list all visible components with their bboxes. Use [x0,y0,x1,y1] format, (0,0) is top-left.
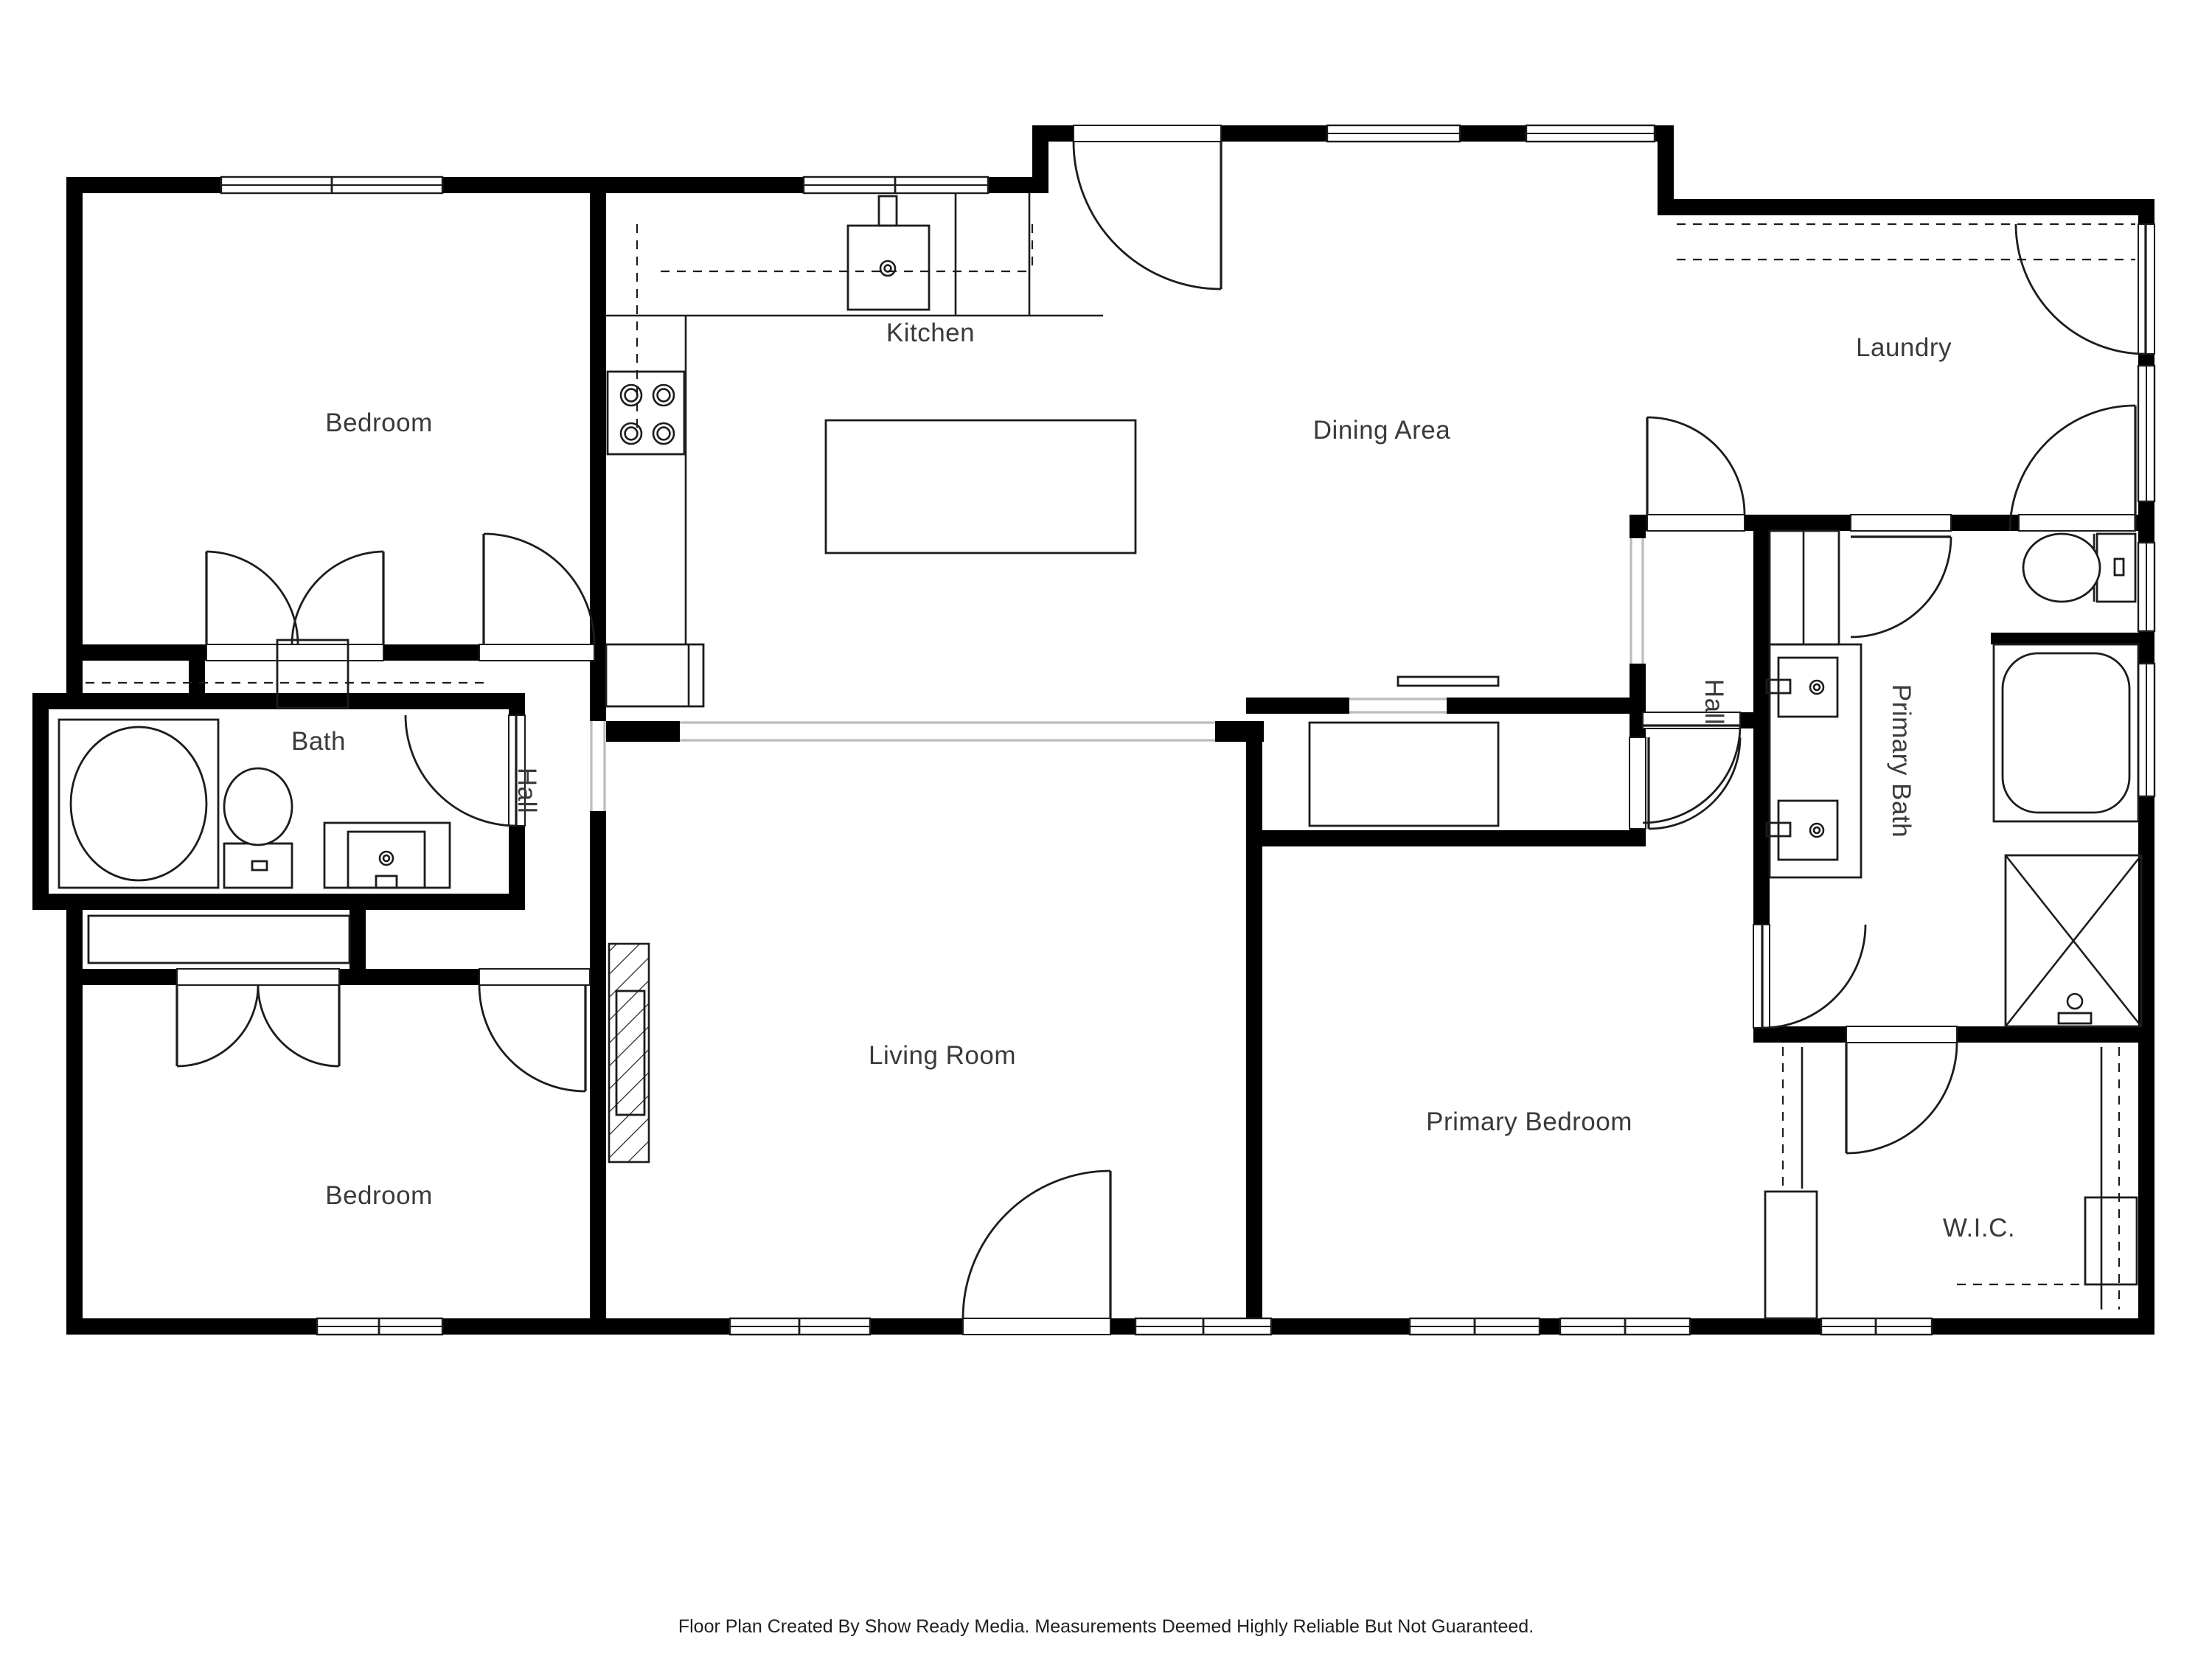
fixture-circle [380,852,393,865]
door-swing-arc [1846,1043,1957,1153]
fixture-circle [1810,681,1823,694]
fixture-circle [625,428,638,440]
door-opening [1630,737,1646,829]
door-opening [479,644,594,661]
door-swing-arc [258,985,339,1066]
niche-shelf [1398,677,1498,686]
wall [1246,830,1646,846]
kitchen-sink-icon [848,226,929,310]
door-swing-arc [2010,406,2135,531]
fixture-circle [1810,824,1823,837]
wall [32,693,49,910]
door-swing-arc [1074,142,1221,289]
wall [32,894,525,910]
toilet-button-icon [2115,559,2124,575]
door-swing-arc [206,552,298,644]
fixture-circle [2067,994,2082,1009]
door-swing-arc [2016,224,2146,354]
wall [1991,633,2154,644]
bath-faucet-icon [376,876,397,888]
fixture-circle [1814,684,1820,690]
door-opening [2019,515,2135,531]
footer-disclaimer: Floor Plan Created By Show Ready Media. … [0,1616,2212,1638]
floor-plan-drawing [0,0,2212,1659]
closet-shelving [88,916,349,963]
fixture-circle [625,389,638,402]
wall [66,894,83,1335]
door-opening [206,644,383,661]
floor-plan-page: BedroomKitchenDining AreaLaundryBathHall… [0,0,2212,1659]
door-opening [479,969,590,985]
door-swing-arc [177,985,258,1066]
door-swing-arc [484,534,594,644]
bathtub-icon [2003,653,2129,813]
toilet-tank-icon [2097,534,2135,602]
wall [606,721,680,742]
bath-sink-icon [1778,658,1837,717]
door-swing-arc [1643,726,1740,823]
fixture-circle [880,261,895,276]
bathtub-icon [71,727,206,880]
bath-sink-icon [1778,801,1837,860]
closet-shelving [1310,723,1498,826]
door-opening [1647,515,1745,531]
toilet-tank-icon [224,844,292,888]
wall [66,177,83,709]
door-opening [1851,515,1951,531]
door-swing-arc [1649,737,1740,829]
wall [1658,199,2154,215]
kitchen-island [826,420,1135,553]
door-swing-arc [1762,925,1865,1028]
door-opening [1074,125,1221,142]
fireplace-icon [609,944,649,1162]
stove-icon [608,372,684,454]
kitchen-faucet-icon [879,196,897,226]
fixture-circle [653,385,674,406]
bath-sink-icon [348,832,425,888]
door-opening [963,1318,1110,1335]
door-swing-arc [1851,537,1951,637]
shower-valve-icon [2059,1013,2091,1023]
door-opening [1846,1026,1957,1043]
fixture-circle [653,423,674,444]
fixture-circle [658,428,670,440]
door-swing-arc [406,715,516,826]
toilet-bowl-icon [224,768,292,845]
tub-surround [1994,644,2138,821]
cased-opening [680,721,1215,742]
door-opening [177,969,339,985]
door-swing-arc [1647,417,1745,515]
door-swing-arc [292,552,383,644]
fixture-circle [621,385,641,406]
wic-cabinet [2085,1197,2137,1284]
toilet-bowl-icon [2023,534,2100,602]
fixture-circle [658,389,670,402]
fixture-circle [1814,827,1820,833]
wic-cabinet [1765,1192,1817,1318]
wall [1246,721,1262,1318]
fixture-circle [621,423,641,444]
fixture-circle [383,855,389,861]
toilet-button-icon [252,861,267,870]
door-swing-arc [963,1171,1110,1318]
door-swing-arc [479,985,585,1091]
